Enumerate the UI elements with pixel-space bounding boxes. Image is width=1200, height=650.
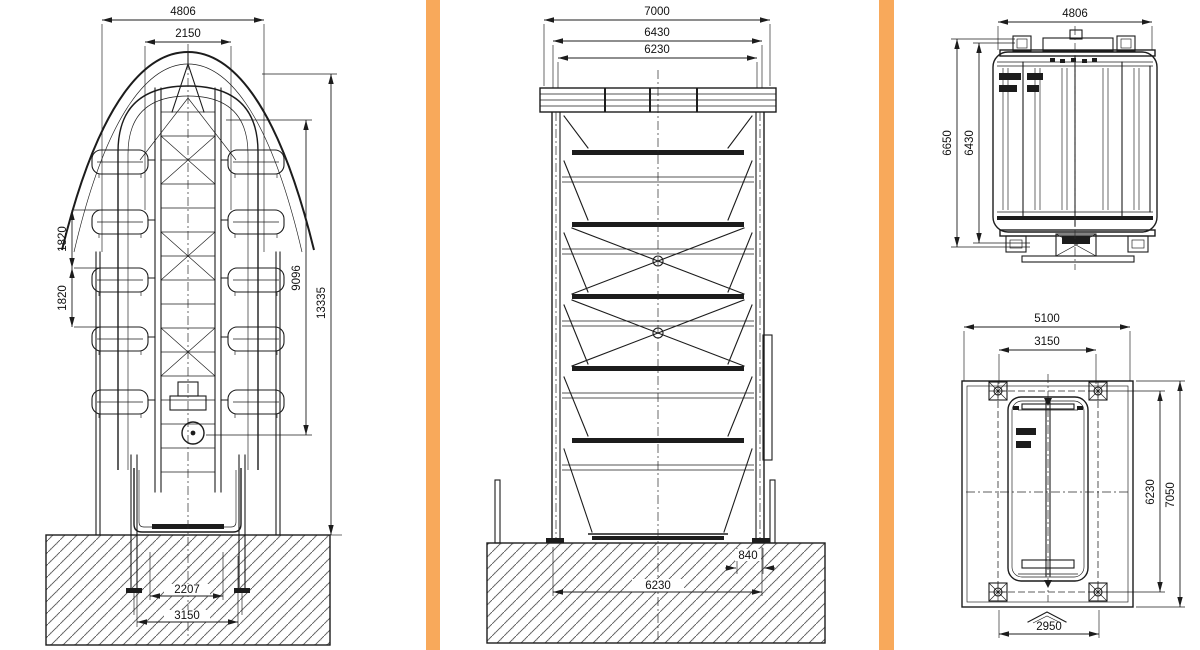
divider-bar-left (426, 0, 440, 650)
dim-front-drive-height: 9096 (291, 265, 303, 291)
dim-foundation-entry-width: 2950 (1036, 621, 1062, 633)
foundation-plan-view: 5100 3150 6230 7050 2950 (962, 313, 1185, 638)
top-plan-upper-mechanism (1000, 30, 1155, 63)
dim-side-foundation-span: 6230 (645, 580, 671, 592)
drawing-canvas: 4806 2150 1820 1820 9096 13335 2207 3150 (0, 0, 1200, 650)
dim-front-level-pitch-upper: 1820 (57, 226, 69, 252)
anchor-plate (989, 382, 1007, 400)
anchor-plate (1089, 583, 1107, 601)
foundation-outer-slab (962, 381, 1133, 607)
dim-top-plan-width: 4806 (1062, 8, 1088, 20)
dim-front-anchor-span: 2207 (174, 584, 200, 596)
cad-drawing: 4806 2150 1820 1820 9096 13335 2207 3150 (0, 0, 1200, 650)
foundation-dimensions: 5100 3150 6230 7050 2950 (964, 313, 1185, 638)
dim-foundation-anchor-span-depth: 6230 (1145, 479, 1157, 505)
anchor-plate (989, 583, 1007, 601)
dim-side-frame-width: 6230 (644, 44, 670, 56)
top-plan-dimensions: 4806 6650 6430 (942, 8, 1152, 247)
dim-front-base-span: 3150 (174, 610, 200, 622)
anchor-plate (1089, 382, 1107, 400)
side-elevation-view: 7000 6430 6230 840 6230 (487, 6, 825, 643)
dim-side-roof-width: 6430 (644, 27, 670, 39)
dim-side-offset: 840 (738, 550, 757, 562)
dim-foundation-overall-width: 5100 (1034, 313, 1060, 325)
dim-front-inner-width: 2150 (175, 28, 201, 40)
front-bottom-cradle (134, 468, 241, 532)
dim-foundation-overall-depth: 7050 (1165, 482, 1177, 508)
side-foundation-block (487, 543, 825, 643)
dim-top-plan-frame-depth: 6430 (964, 130, 976, 156)
dim-front-overall-height: 13335 (316, 287, 328, 319)
dim-front-overall-width: 4806 (170, 6, 196, 18)
dim-foundation-anchor-span-width: 3150 (1034, 336, 1060, 348)
front-dimensions: 4806 2150 1820 1820 9096 13335 2207 3150 (57, 6, 337, 627)
dim-side-overall-width: 7000 (644, 6, 670, 18)
divider-bar-right (879, 0, 894, 650)
dim-front-level-pitch-lower: 1820 (57, 285, 69, 311)
top-plan-lower-mechanism (1000, 230, 1155, 262)
front-elevation-view: 4806 2150 1820 1820 9096 13335 2207 3150 (46, 6, 342, 645)
top-plan-view: 4806 6650 6430 (942, 8, 1157, 270)
dim-top-plan-overall-depth: 6650 (942, 130, 954, 156)
